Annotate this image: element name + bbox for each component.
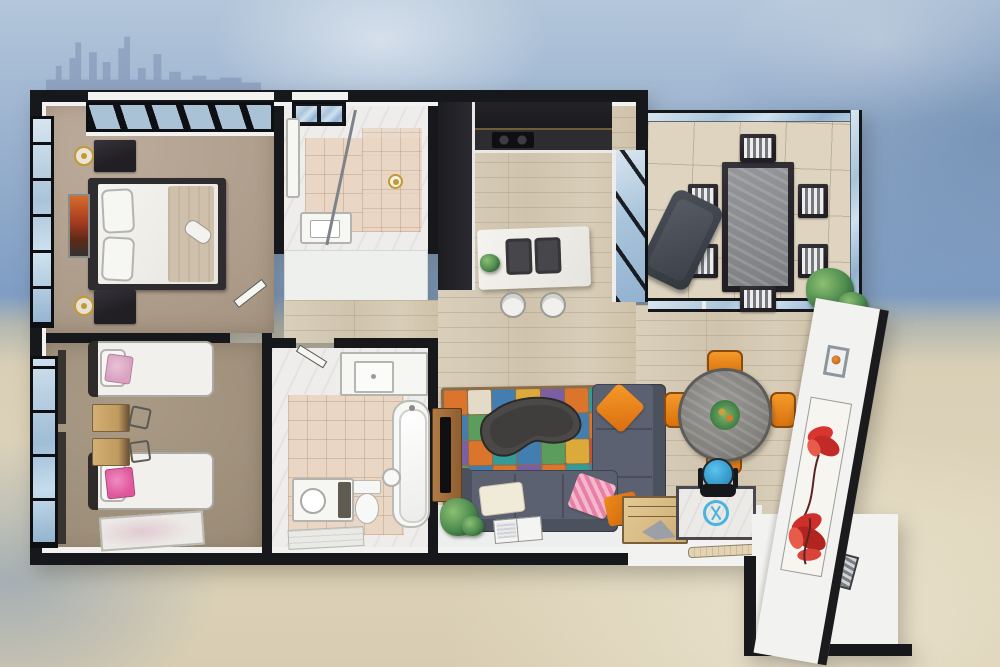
master-skylight-window: [86, 102, 274, 132]
cooktop: [492, 132, 534, 148]
kids-bed-north: [88, 341, 214, 397]
dining-chair-east: [770, 392, 796, 428]
tv-console: [432, 408, 462, 502]
balcony-chair-east1: [798, 184, 828, 218]
organizer-papers: [642, 520, 676, 540]
master-skylight-sill: [86, 132, 274, 136]
centerpiece-plant: [710, 400, 740, 430]
kitchen-window-wall: [612, 150, 648, 302]
bathtub: [392, 400, 430, 528]
master-bed: [88, 178, 226, 290]
table-lamp-north: [74, 146, 94, 166]
ensuite-mirror-cabinet: [286, 118, 300, 198]
vanity-dark-side: [338, 482, 351, 518]
art-detail: [831, 355, 841, 365]
counter-square-sink: [354, 361, 394, 393]
wall-master-ensuite: [274, 96, 284, 254]
toilet: [352, 480, 380, 524]
island-sink: [505, 238, 532, 275]
balcony-rail-right: [850, 110, 862, 310]
balcony-chair-north: [740, 134, 776, 162]
balcony-rail-top: [648, 110, 862, 122]
island-sink: [534, 237, 561, 274]
balcony-chair-south: [740, 286, 776, 312]
monitor-logo: [703, 500, 729, 526]
bidet: [382, 468, 401, 487]
table-lamp-south: [74, 296, 94, 316]
bed-pillow: [101, 188, 135, 234]
kids-desk-chair: [128, 405, 152, 430]
island-plant: [480, 254, 500, 272]
chair-cushion: [744, 138, 772, 158]
kids-wall-strip: [58, 432, 66, 544]
sofa-cushion-white: [478, 481, 525, 516]
chair-cushion: [802, 188, 824, 214]
kids-desk-chair: [129, 440, 152, 464]
magazine: [493, 516, 543, 544]
master-wall-art: [68, 194, 90, 258]
nightstand-north: [94, 140, 136, 172]
ensuite-skylight: [292, 102, 346, 126]
balcony-sliding-doors: [648, 298, 822, 312]
organizer-slot: [628, 516, 682, 517]
skylight-pane: [321, 106, 342, 122]
bath-faucet: [409, 405, 415, 411]
office-chair-back: [700, 484, 736, 497]
wall-top-sill-master: [88, 92, 274, 100]
wall-top-sill-ensuite: [292, 92, 348, 100]
framed-art-small: [823, 345, 850, 378]
nightstand-south: [94, 290, 136, 324]
organizer-slot: [628, 506, 682, 507]
hallway-floor: [284, 250, 428, 306]
wall-kids-bathroom: [262, 333, 272, 565]
balcony-dining-table: [722, 162, 794, 292]
wall-ensuite-kitchen: [428, 96, 438, 254]
entry-wall-left: [744, 556, 756, 656]
kids-desk: [92, 438, 130, 466]
kitchen-cabinets-west: [438, 102, 475, 290]
vanity-sink: [310, 220, 340, 238]
hallway-wood-floor: [284, 300, 438, 343]
toilet-bowl: [355, 493, 379, 524]
sofa-seam: [562, 474, 564, 518]
bathroom-step-shelf: [288, 526, 365, 550]
magazine-page: [496, 521, 516, 539]
kids-rug: [99, 510, 205, 551]
kids-desk: [92, 404, 130, 432]
pink-cushion: [104, 353, 134, 384]
living-floor-plant-small: [462, 516, 484, 536]
magazine-spine: [516, 519, 519, 541]
bathroom-vanity: [292, 478, 354, 522]
bar-stool: [540, 292, 566, 318]
ensuite-gold-lamp: [388, 174, 403, 189]
balcony-table-top: [728, 168, 788, 286]
bar-stool: [500, 292, 526, 318]
pink-cushion: [105, 467, 136, 500]
coffee-table: [470, 386, 596, 476]
apartment-floor-plan: [0, 0, 1000, 667]
bathtub-basin: [399, 409, 427, 523]
round-dining-table: [678, 368, 772, 462]
toilet-tank: [353, 480, 381, 494]
wall-bathroom-north-a: [272, 338, 296, 348]
tv: [440, 417, 451, 493]
wall-bathroom-north-b: [334, 338, 438, 348]
round-basin: [300, 488, 326, 514]
sink-drain: [371, 374, 376, 379]
scene: [0, 0, 1000, 667]
bed-head-frame: [88, 341, 98, 397]
kids-wall-strip: [58, 350, 66, 424]
chair-cushion: [744, 290, 772, 308]
office-chair: [698, 458, 738, 498]
bathroom-counter: [340, 352, 428, 396]
master-side-window: [30, 116, 54, 328]
kids-window: [30, 356, 58, 548]
bed-pillow: [101, 236, 135, 282]
